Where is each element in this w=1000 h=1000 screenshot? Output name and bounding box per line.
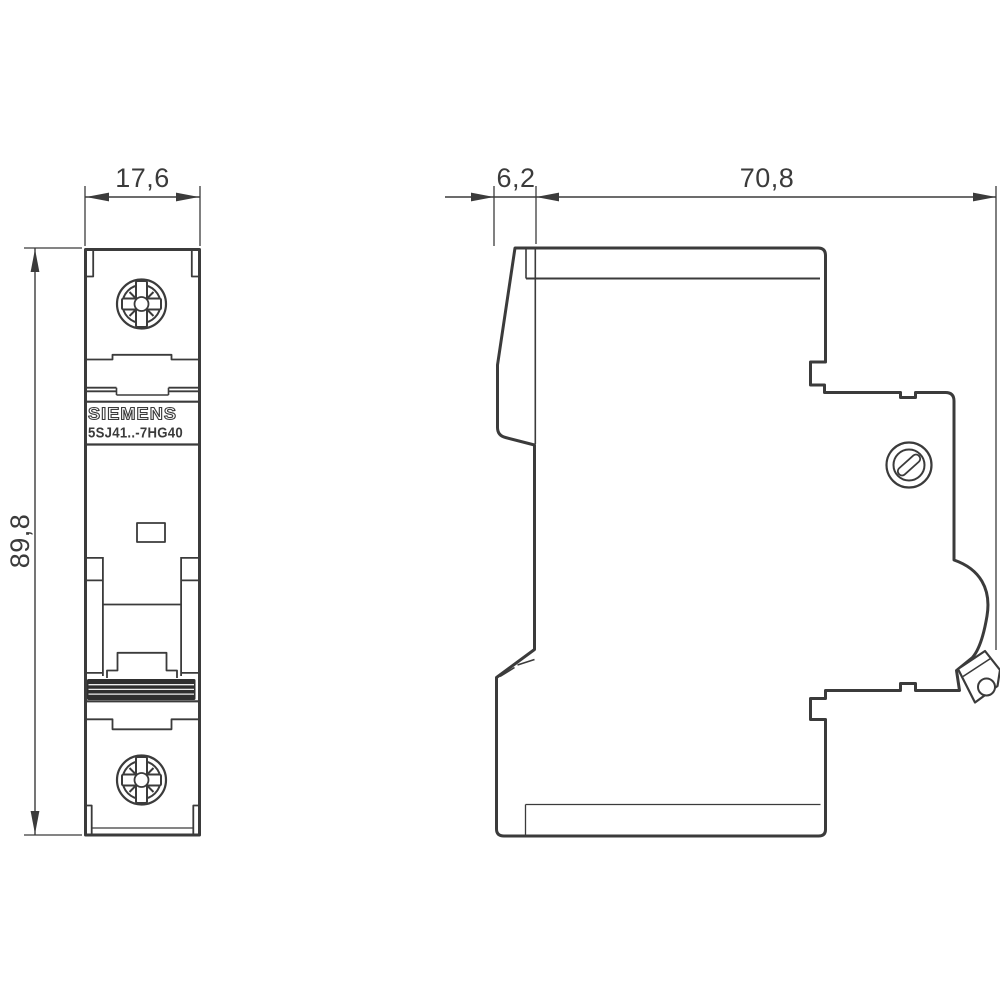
label-window	[137, 523, 165, 542]
bottom-terminal-screw-icon	[117, 756, 166, 805]
brand-label: SIEMENS	[88, 404, 177, 424]
lever-depth-label: 6,2	[496, 163, 535, 193]
front-height-label: 89,8	[5, 514, 35, 569]
lever-neck	[107, 653, 177, 678]
clamp-screw-icon	[978, 679, 995, 696]
dimension-drawing-page: 17,6 89,8 SIEMENS 5SJ41..-7HG40	[0, 0, 1000, 1000]
total-depth-label: 70,8	[740, 163, 795, 193]
technical-drawing: 17,6 89,8 SIEMENS 5SJ41..-7HG40	[0, 0, 1000, 1000]
side-screw-icon	[887, 443, 932, 488]
front-width-label: 17,6	[115, 163, 170, 193]
top-terminal-screw-icon	[117, 280, 166, 329]
product-code-label: 5SJ41..-7HG40	[88, 425, 183, 442]
